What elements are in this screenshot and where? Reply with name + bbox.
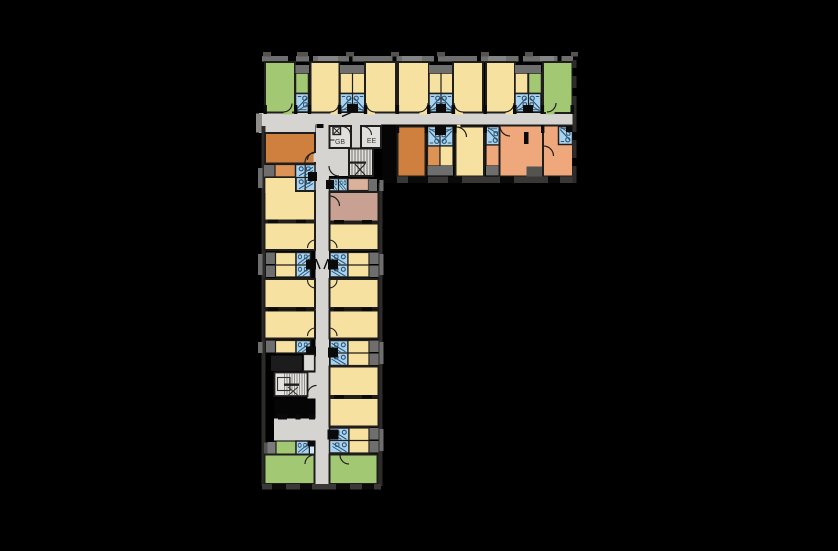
svg-text:GB: GB (335, 139, 345, 146)
svg-text:EE: EE (367, 138, 377, 145)
